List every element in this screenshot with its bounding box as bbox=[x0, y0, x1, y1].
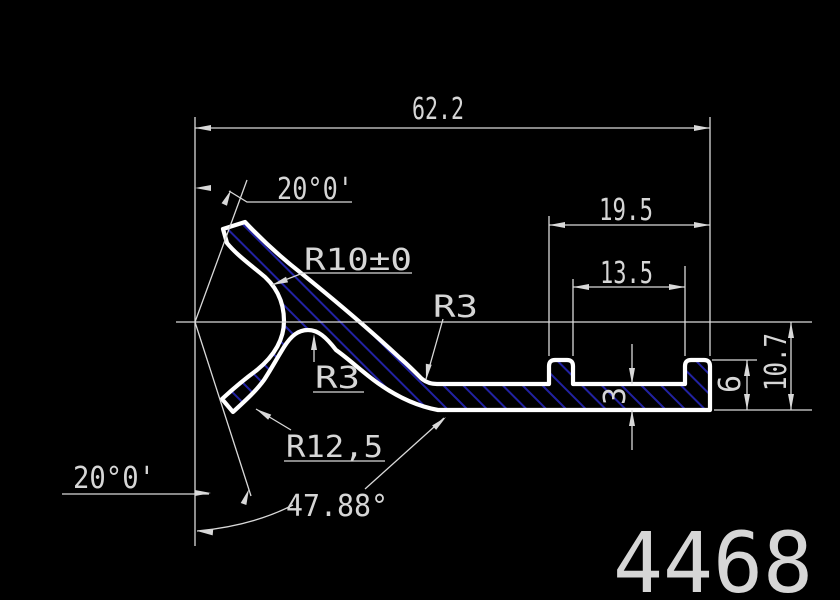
arrow-10-7-bottom bbox=[788, 394, 794, 410]
cad-canvas: 62.2 19.5 13.5 3 6 10.7 20°0' R10±0 R3 R… bbox=[0, 0, 840, 600]
arrow-6-bottom bbox=[744, 394, 750, 410]
dim-13-5-label: 13.5 bbox=[600, 256, 653, 291]
dim-19-5-label: 19.5 bbox=[599, 193, 653, 228]
radius-r12-5-label: R12,5 bbox=[286, 430, 383, 465]
arrow-19-5-right bbox=[694, 222, 710, 228]
part-number: 4468 bbox=[613, 514, 813, 600]
radius-r3-hump-label: R3 bbox=[315, 361, 360, 396]
dim-10-7-label: 10.7 bbox=[759, 333, 794, 391]
radius-r10-label: R10±0 bbox=[304, 243, 412, 278]
arrow-angle-top-left bbox=[195, 185, 211, 191]
arrow-6-top bbox=[744, 360, 750, 376]
arrow-13-5-right bbox=[669, 284, 685, 290]
arrow-47-88-right bbox=[432, 415, 448, 430]
dim-angle-top-label: 20°0' bbox=[277, 172, 353, 207]
dimension-arc-47-88 bbox=[197, 505, 293, 531]
arrow-angle-top-right bbox=[222, 189, 234, 206]
arrow-angle-bottom-right bbox=[241, 488, 252, 505]
arrow-19-5-left bbox=[549, 222, 565, 228]
dim-angle-47-label: 47.88° bbox=[286, 489, 388, 524]
dim-angle-bottom-label: 20°0' bbox=[73, 461, 155, 496]
arrow-r3-upper bbox=[423, 364, 432, 381]
arrow-3-top bbox=[629, 368, 635, 384]
arrow-r3-hump bbox=[311, 334, 317, 350]
radial-line-lower-lip bbox=[195, 322, 251, 496]
arrow-62-2-left bbox=[195, 125, 211, 131]
arrow-13-5-left bbox=[573, 284, 589, 290]
dim-3-label: 3 bbox=[598, 387, 633, 405]
dim-6-label: 6 bbox=[713, 375, 748, 393]
arrow-r12-5 bbox=[254, 406, 271, 419]
arrow-3-bottom bbox=[629, 410, 635, 426]
radius-r3-upper-label: R3 bbox=[433, 290, 478, 325]
dim-width-label: 62.2 bbox=[412, 92, 464, 127]
technical-drawing: 62.2 19.5 13.5 3 6 10.7 20°0' R10±0 R3 R… bbox=[0, 0, 840, 600]
arrow-angle-bottom-left bbox=[195, 490, 211, 496]
arrow-62-2-right bbox=[694, 125, 710, 131]
